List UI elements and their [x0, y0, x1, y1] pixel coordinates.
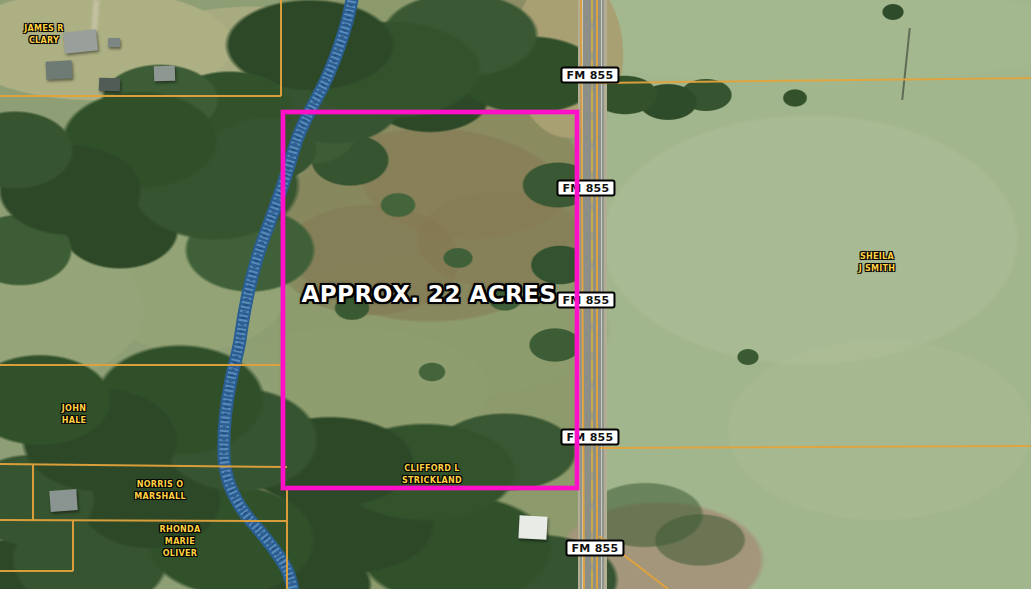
owner-label-line: SHEILA	[859, 251, 896, 263]
owner-label-john-hale: JOHN HALE	[62, 403, 87, 427]
parcel-line	[597, 78, 1031, 83]
owner-label-james-r-clary: JAMES R CLARY	[24, 23, 63, 47]
owner-label-line: OLIVER	[160, 548, 201, 560]
owner-label-clifford-l-strickland: CLIFFORD L STRICKLAND	[402, 463, 462, 487]
owner-label-rhonda-marie-oliver: RHONDA MARIE OLIVER	[160, 524, 201, 560]
owner-label-line: JAMES R	[24, 23, 63, 35]
owner-label-line: RHONDA	[160, 524, 201, 536]
satellite-map: FM 855 FM 855 FM 855 FM 855 FM 855 APPRO…	[0, 0, 1031, 589]
owner-label-line: MARIE	[160, 536, 201, 548]
owner-label-line: MARSHALL	[134, 491, 186, 503]
owner-label-norris-o-marshall: NORRIS O MARSHALL	[134, 479, 186, 503]
owner-label-line: HALE	[62, 415, 87, 427]
owner-label-line: CLIFFORD L	[402, 463, 462, 475]
owner-label-line: STRICKLAND	[402, 475, 462, 487]
owner-label-line: NORRIS O	[134, 479, 186, 491]
parcel-line	[600, 446, 1031, 448]
parcel-line	[0, 520, 287, 521]
acreage-label: APPROX. 22 ACRES	[301, 281, 556, 307]
parcel-line	[0, 464, 287, 467]
road-shield-fm855: FM 855	[560, 67, 619, 84]
owner-label-line: J SMITH	[859, 263, 896, 275]
owner-label-line: JOHN	[62, 403, 87, 415]
owner-label-sheila-j-smith: SHEILA J SMITH	[859, 251, 896, 275]
road-shield-fm855: FM 855	[565, 540, 624, 557]
owner-label-line: CLARY	[24, 35, 63, 47]
